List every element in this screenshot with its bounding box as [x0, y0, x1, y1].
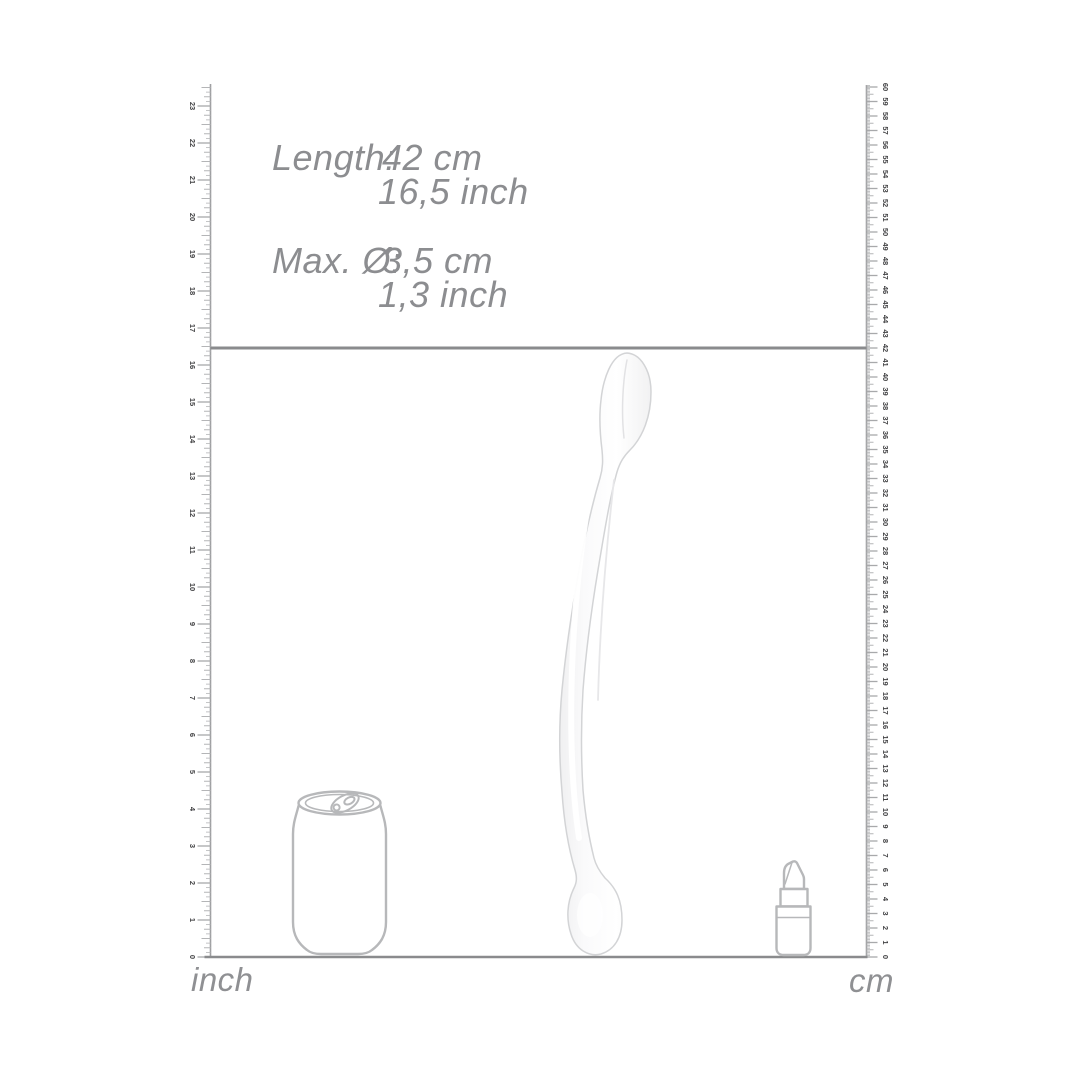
svg-text:20: 20	[881, 663, 890, 671]
svg-text:21: 21	[188, 176, 197, 184]
svg-text:23: 23	[881, 619, 890, 627]
lipstick-icon	[777, 861, 811, 955]
diameter-line-2: 1,3 inch	[378, 277, 508, 313]
length-value-inch: 16,5 inch	[378, 171, 529, 212]
svg-text:4: 4	[188, 807, 197, 812]
svg-text:21: 21	[881, 648, 890, 656]
svg-text:51: 51	[881, 213, 890, 221]
length-line-2: 16,5 inch	[378, 174, 529, 210]
svg-text:33: 33	[881, 474, 890, 482]
svg-text:29: 29	[881, 532, 890, 540]
svg-text:24: 24	[881, 605, 890, 614]
length-label: Length:	[272, 140, 382, 176]
svg-text:16: 16	[188, 361, 197, 369]
svg-text:30: 30	[881, 518, 890, 526]
svg-text:16: 16	[881, 721, 890, 729]
svg-text:1: 1	[188, 918, 197, 922]
svg-text:20: 20	[188, 213, 197, 221]
svg-text:17: 17	[881, 706, 890, 714]
svg-text:59: 59	[881, 97, 890, 105]
svg-text:7: 7	[881, 853, 890, 857]
lipstick-bullet	[784, 861, 804, 889]
svg-text:13: 13	[188, 472, 197, 480]
svg-text:8: 8	[881, 839, 890, 843]
svg-text:48: 48	[881, 257, 890, 265]
svg-text:39: 39	[881, 387, 890, 395]
svg-text:41: 41	[881, 358, 890, 366]
svg-text:13: 13	[881, 764, 890, 772]
svg-text:25: 25	[881, 590, 890, 598]
svg-text:9: 9	[881, 824, 890, 828]
svg-text:23: 23	[188, 102, 197, 110]
diameter-label: Max. Ø:	[272, 243, 382, 279]
svg-text:38: 38	[881, 402, 890, 410]
svg-text:56: 56	[881, 141, 890, 149]
svg-text:27: 27	[881, 561, 890, 569]
svg-text:2: 2	[188, 881, 197, 885]
svg-text:31: 31	[881, 503, 890, 511]
svg-text:10: 10	[188, 583, 197, 591]
svg-text:14: 14	[881, 750, 890, 759]
svg-text:49: 49	[881, 242, 890, 250]
svg-text:8: 8	[188, 659, 197, 663]
svg-text:46: 46	[881, 286, 890, 294]
inch-unit-label: inch	[191, 963, 254, 996]
cm-ruler: 0123456789101112131415161718192021222324…	[867, 83, 891, 959]
soda-can-icon	[293, 789, 386, 954]
svg-text:43: 43	[881, 329, 890, 337]
svg-text:55: 55	[881, 155, 890, 163]
svg-text:6: 6	[188, 733, 197, 737]
svg-text:12: 12	[188, 509, 197, 517]
svg-text:60: 60	[881, 83, 890, 91]
svg-text:57: 57	[881, 126, 890, 134]
svg-text:0: 0	[188, 955, 197, 959]
svg-text:42: 42	[881, 344, 890, 352]
svg-text:18: 18	[188, 287, 197, 295]
svg-text:11: 11	[881, 794, 890, 802]
svg-text:11: 11	[188, 546, 197, 554]
svg-text:1: 1	[881, 940, 890, 944]
svg-text:34: 34	[881, 460, 890, 469]
svg-text:3: 3	[188, 844, 197, 848]
svg-text:0: 0	[881, 955, 890, 959]
svg-text:19: 19	[881, 677, 890, 685]
svg-text:15: 15	[881, 735, 890, 743]
svg-text:53: 53	[881, 184, 890, 192]
product-dimension-diagram: 01234567891011121314151617181920212223 0…	[0, 0, 1080, 1080]
diameter-value-inch: 1,3 inch	[378, 274, 508, 315]
lipstick-collar	[781, 889, 808, 907]
diagram-graphics: 01234567891011121314151617181920212223 0…	[0, 0, 1080, 1080]
svg-text:44: 44	[881, 315, 890, 324]
measurement-lines	[205, 348, 868, 957]
svg-text:12: 12	[881, 779, 890, 787]
svg-text:37: 37	[881, 416, 890, 424]
product-image	[560, 353, 651, 955]
svg-text:17: 17	[188, 324, 197, 332]
svg-text:15: 15	[188, 398, 197, 406]
lipstick-base	[777, 907, 811, 956]
svg-text:50: 50	[881, 228, 890, 236]
svg-text:9: 9	[188, 622, 197, 626]
svg-text:18: 18	[881, 692, 890, 700]
svg-text:28: 28	[881, 547, 890, 555]
svg-text:52: 52	[881, 199, 890, 207]
svg-text:54: 54	[881, 170, 890, 179]
svg-text:22: 22	[188, 139, 197, 147]
svg-text:32: 32	[881, 489, 890, 497]
svg-text:35: 35	[881, 445, 890, 453]
inch-ruler: 01234567891011121314151617181920212223	[188, 84, 210, 959]
svg-text:5: 5	[188, 770, 197, 774]
svg-text:58: 58	[881, 112, 890, 120]
svg-text:5: 5	[881, 882, 890, 886]
cm-unit-label: cm	[849, 964, 894, 997]
svg-text:47: 47	[881, 271, 890, 279]
svg-text:26: 26	[881, 576, 890, 584]
svg-text:40: 40	[881, 373, 890, 381]
svg-text:7: 7	[188, 696, 197, 700]
svg-text:2: 2	[881, 926, 890, 930]
svg-text:36: 36	[881, 431, 890, 439]
svg-text:6: 6	[881, 868, 890, 872]
svg-text:10: 10	[881, 808, 890, 816]
svg-text:3: 3	[881, 911, 890, 915]
svg-text:4: 4	[881, 897, 890, 902]
product-bottom-sheen	[577, 893, 603, 937]
svg-text:45: 45	[881, 300, 890, 308]
svg-text:14: 14	[188, 435, 197, 444]
svg-text:19: 19	[188, 250, 197, 258]
svg-text:22: 22	[881, 634, 890, 642]
